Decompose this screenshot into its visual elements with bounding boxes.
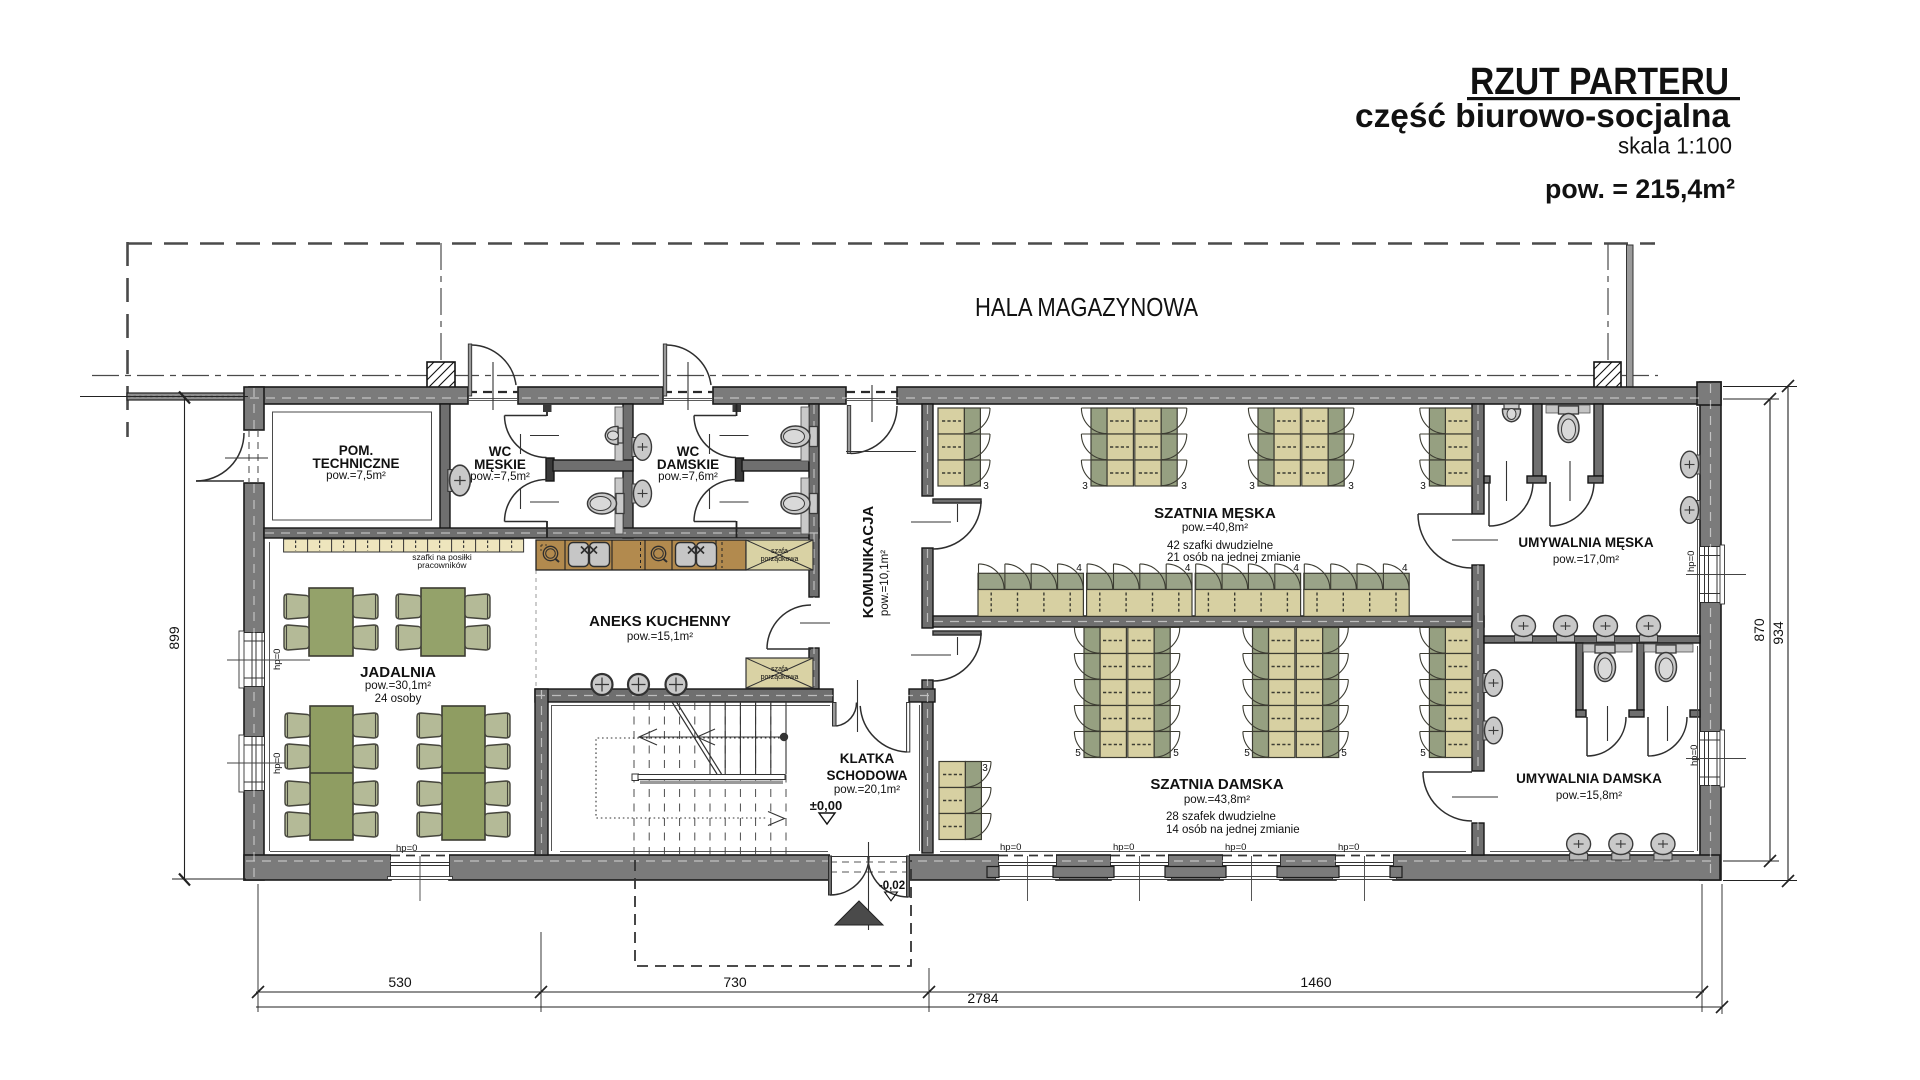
svg-text:pow.=10,1m²: pow.=10,1m²	[879, 550, 891, 616]
svg-text:skala 1:100: skala 1:100	[1618, 133, 1732, 159]
svg-text:hp=0: hp=0	[272, 649, 283, 670]
svg-text:hp=0: hp=0	[1225, 842, 1246, 853]
svg-text:szafa: szafa	[771, 548, 788, 555]
svg-text:KOMUNIKACJA: KOMUNIKACJA	[860, 506, 877, 619]
svg-text:1460: 1460	[1300, 974, 1331, 990]
svg-text:porządkowa: porządkowa	[761, 674, 799, 681]
svg-text:5: 5	[1420, 748, 1426, 759]
svg-text:SZATNIA DAMSKA: SZATNIA DAMSKA	[1150, 776, 1283, 793]
svg-text:3: 3	[983, 481, 989, 492]
svg-text:hp=0: hp=0	[1686, 551, 1697, 572]
svg-text:pow.=15,8m²: pow.=15,8m²	[1556, 790, 1622, 802]
svg-text:pow.=43,8m²: pow.=43,8m²	[1184, 794, 1250, 806]
svg-text:JADALNIA: JADALNIA	[360, 664, 436, 681]
svg-text:2784: 2784	[967, 990, 998, 1006]
svg-text:pow.=7,5m²: pow.=7,5m²	[470, 471, 530, 483]
svg-text:5: 5	[1341, 748, 1347, 759]
svg-text:4: 4	[1076, 563, 1082, 574]
svg-text:pow.=15,1m²: pow.=15,1m²	[627, 631, 693, 643]
svg-text:42 szafki dwudzielne: 42 szafki dwudzielne	[1167, 540, 1273, 552]
svg-text:4: 4	[1185, 563, 1191, 574]
svg-text:pow.=7,6m²: pow.=7,6m²	[658, 471, 718, 483]
svg-text:5: 5	[1075, 748, 1081, 759]
svg-text:TECHNICZNE: TECHNICZNE	[313, 456, 400, 471]
svg-text:24 osoby: 24 osoby	[375, 693, 422, 705]
svg-text:pracowników: pracowników	[417, 560, 467, 570]
svg-text:14 osób na jednej zmianie: 14 osób na jednej zmianie	[1166, 824, 1300, 836]
svg-text:pow.=20,1m²: pow.=20,1m²	[834, 784, 900, 796]
svg-text:ANEKS KUCHENNY: ANEKS KUCHENNY	[589, 613, 731, 630]
svg-text:hp=0: hp=0	[1113, 842, 1134, 853]
svg-text:4: 4	[1293, 563, 1299, 574]
svg-text:899: 899	[166, 626, 182, 650]
svg-text:DAMSKIE: DAMSKIE	[657, 457, 719, 472]
svg-text:730: 730	[723, 974, 747, 990]
svg-text:5: 5	[1244, 748, 1250, 759]
svg-text:530: 530	[388, 974, 412, 990]
svg-text:870: 870	[1751, 618, 1767, 642]
svg-text:SZATNIA MĘSKA: SZATNIA MĘSKA	[1154, 505, 1276, 522]
svg-text:hp=0: hp=0	[1689, 745, 1700, 766]
svg-text:pow.=7,5m²: pow.=7,5m²	[326, 470, 386, 482]
svg-text:934: 934	[1770, 621, 1786, 645]
svg-text:pow.=30,1m²: pow.=30,1m²	[365, 680, 431, 692]
svg-text:UMYWALNIA DAMSKA: UMYWALNIA DAMSKA	[1516, 771, 1662, 786]
svg-text:UMYWALNIA MĘSKA: UMYWALNIA MĘSKA	[1518, 535, 1653, 550]
svg-text:część biurowo-socjalna: część biurowo-socjalna	[1355, 97, 1731, 134]
svg-text:pow.=40,8m²: pow.=40,8m²	[1182, 522, 1248, 534]
svg-text:3: 3	[1420, 481, 1426, 492]
svg-text:HALA MAGAZYNOWA: HALA MAGAZYNOWA	[975, 292, 1199, 322]
svg-text:SCHODOWA: SCHODOWA	[827, 768, 908, 783]
svg-text:hp=0: hp=0	[1000, 842, 1021, 853]
svg-text:±0,00: ±0,00	[810, 798, 842, 813]
svg-text:3: 3	[1348, 481, 1354, 492]
svg-text:3: 3	[1181, 481, 1187, 492]
svg-text:3: 3	[1249, 481, 1255, 492]
svg-text:3: 3	[1082, 481, 1088, 492]
svg-text:4: 4	[1402, 563, 1408, 574]
svg-text:szafa: szafa	[771, 666, 788, 673]
svg-text:pow. = 215,4m²: pow. = 215,4m²	[1545, 174, 1735, 204]
svg-text:28 szafek dwudzielne: 28 szafek dwudzielne	[1166, 811, 1276, 823]
svg-text:-0,02: -0,02	[879, 880, 905, 892]
svg-text:KLATKA: KLATKA	[840, 751, 895, 766]
svg-text:3: 3	[982, 763, 988, 774]
svg-text:hp=0: hp=0	[396, 843, 417, 854]
svg-text:pow.=17,0m²: pow.=17,0m²	[1553, 554, 1619, 566]
svg-text:MĘSKIE: MĘSKIE	[474, 457, 526, 472]
svg-text:porządkowa: porządkowa	[761, 556, 799, 563]
svg-text:5: 5	[1173, 748, 1179, 759]
svg-text:hp=0: hp=0	[1338, 842, 1359, 853]
